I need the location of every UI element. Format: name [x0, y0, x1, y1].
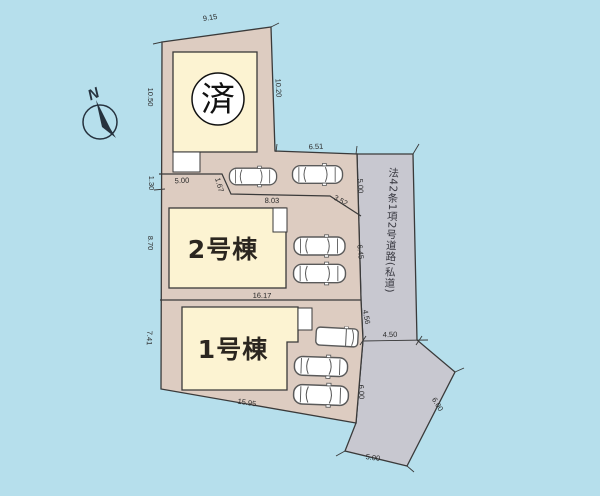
car-icon — [292, 164, 342, 186]
sold-badge-label: 済 — [201, 80, 235, 120]
car-icon — [294, 354, 348, 379]
site-plan-canvas: 済 2号棟 1号棟 N 9.15 10.50 10.20 6.51 5.00 1… — [0, 0, 600, 496]
dim-left-step: 1.30 — [147, 176, 156, 191]
dim-right-upper: 10.20 — [274, 78, 284, 97]
van-icon — [316, 325, 359, 347]
dim-sold-plot-south: 5.00 — [174, 176, 189, 186]
road-label: 法42条1項2号道路(私道) — [372, 167, 399, 308]
dim-road-upper: 5.00 — [356, 179, 366, 194]
dim-road-middle: 6.45 — [355, 244, 365, 259]
dim-road-left-lower: 6.00 — [357, 385, 367, 400]
building-1-porch — [298, 308, 312, 330]
dim-plot2-south: 16.17 — [253, 291, 272, 300]
plot-layout-diagram: 済 2号棟 1号棟 N 9.15 10.50 10.20 6.51 5.00 1… — [0, 0, 600, 496]
dim-left-plot2: 8.70 — [146, 236, 155, 251]
car-icon — [294, 262, 346, 285]
car-icon — [229, 166, 276, 187]
dim-north-strip-width: 6.51 — [309, 142, 324, 152]
dim-road-width: 4.50 — [383, 330, 398, 340]
car-icon — [293, 382, 349, 408]
building-2-label: 2号棟 — [188, 235, 258, 264]
dim-left-plot1: 7.41 — [145, 331, 155, 346]
dim-plot2-north: 8.03 — [265, 196, 280, 205]
building-sold-porch — [173, 152, 200, 172]
car-icon — [294, 235, 345, 257]
building-2-porch — [273, 208, 287, 232]
building-1-label: 1号棟 — [198, 335, 268, 364]
dim-left-upper: 10.50 — [146, 88, 155, 107]
